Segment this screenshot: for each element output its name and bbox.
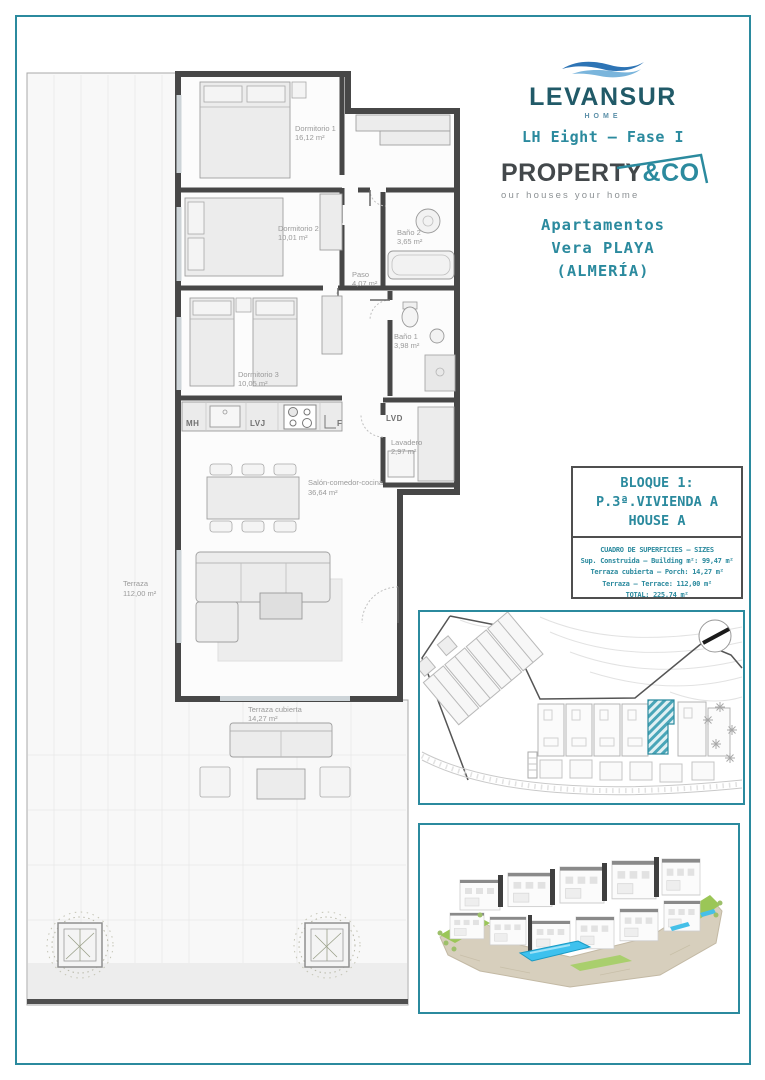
label-paso-area: 4,07 m² bbox=[352, 279, 378, 288]
render-figure bbox=[418, 823, 740, 1014]
sofa-set bbox=[196, 552, 342, 661]
label-salon-area: 36,64 m² bbox=[308, 488, 338, 497]
north-compass-icon bbox=[699, 620, 731, 652]
label-bano-1: Baño 1 bbox=[394, 332, 418, 341]
label-lvj: LVJ bbox=[250, 419, 266, 428]
brochure-page: { "brand": { "name": "LEVANSUR", "tag": … bbox=[0, 0, 765, 1080]
label-bano-2-area: 3,65 m² bbox=[397, 237, 423, 246]
site-plan-figure bbox=[418, 610, 745, 805]
highlighted-unit bbox=[648, 700, 674, 754]
brand-logo-text: LEVANSUR bbox=[455, 83, 751, 112]
project-province: (ALMERÍA) bbox=[455, 260, 751, 283]
unit-info-box: BLOQUE 1: P.3ª.VIVIENDA A HOUSE A CUADRO… bbox=[571, 466, 743, 599]
wave-icon bbox=[558, 56, 648, 82]
site-plan-drawing bbox=[420, 612, 743, 803]
label-terraza-area: 112,00 m² bbox=[123, 589, 157, 598]
unit-row bbox=[538, 702, 730, 756]
label-terraza-cubierta-area: 14,27 m² bbox=[248, 714, 278, 723]
sizes-row-terrace: Terraza – Terrace: 112,00 m² bbox=[576, 579, 738, 590]
unit-floor: P.3ª.VIVIENDA A bbox=[573, 493, 741, 512]
sizes-row-porch: Terraza cubierta – Porch: 14,27 m² bbox=[576, 567, 738, 578]
floor-plan-drawing: Dormitorio 1 16,12 m² Dormitorio 2 10,01… bbox=[20, 55, 465, 1015]
dining-set bbox=[207, 464, 299, 532]
label-bano-2: Baño 2 bbox=[397, 228, 421, 237]
render-3d-drawing bbox=[420, 825, 738, 1012]
sizes-row-building: Sup. Construida – Building m²: 99,47 m² bbox=[576, 556, 738, 567]
furniture-dormitorio-1 bbox=[200, 82, 306, 178]
label-terraza: Terraza bbox=[123, 579, 149, 588]
sizes-row-total: TOTAL: 225,74 m² bbox=[576, 590, 738, 599]
left-building-cluster bbox=[420, 612, 543, 725]
label-dormitorio-2-area: 10,01 m² bbox=[278, 233, 308, 242]
label-dormitorio-1: Dormitorio 1 bbox=[295, 124, 336, 133]
label-dormitorio-3-area: 10,05 m² bbox=[238, 379, 268, 388]
partner-tagline: our houses your home bbox=[501, 190, 751, 201]
partner-logo: PROPERTY&CO bbox=[501, 160, 700, 188]
label-dormitorio-2: Dormitorio 2 bbox=[278, 224, 319, 233]
label-dormitorio-3: Dormitorio 3 bbox=[238, 370, 279, 379]
unit-house: HOUSE A bbox=[573, 512, 741, 531]
label-paso: Paso bbox=[352, 270, 369, 279]
label-terraza-cubierta: Terraza cubierta bbox=[248, 705, 303, 714]
brand-block: LEVANSUR HOME LH Eight – Fase I PROPERTY… bbox=[455, 56, 751, 283]
brand-logo-sub: HOME bbox=[455, 113, 751, 120]
label-f: F bbox=[337, 419, 342, 428]
label-mh: MH bbox=[186, 419, 199, 428]
project-type: Apartamentos bbox=[455, 214, 751, 237]
label-bano-1-area: 3,98 m² bbox=[394, 341, 420, 350]
label-lavadero: Lavadero bbox=[391, 438, 422, 447]
project-location: Vera PLAYA bbox=[455, 237, 751, 260]
label-salon: Salón-comedor-cocina bbox=[308, 478, 384, 487]
label-lavadero-area: 2,97 m² bbox=[391, 447, 417, 456]
label-lvd: LVD bbox=[386, 414, 403, 423]
label-dormitorio-1-area: 16,12 m² bbox=[295, 133, 325, 142]
roof-line-icon bbox=[615, 151, 715, 189]
phase-title: LH Eight – Fase I bbox=[455, 128, 751, 146]
unit-block: BLOQUE 1: bbox=[573, 474, 741, 493]
sizes-table-title: CUADRO DE SUPERFICIES – SIZES bbox=[576, 545, 738, 556]
